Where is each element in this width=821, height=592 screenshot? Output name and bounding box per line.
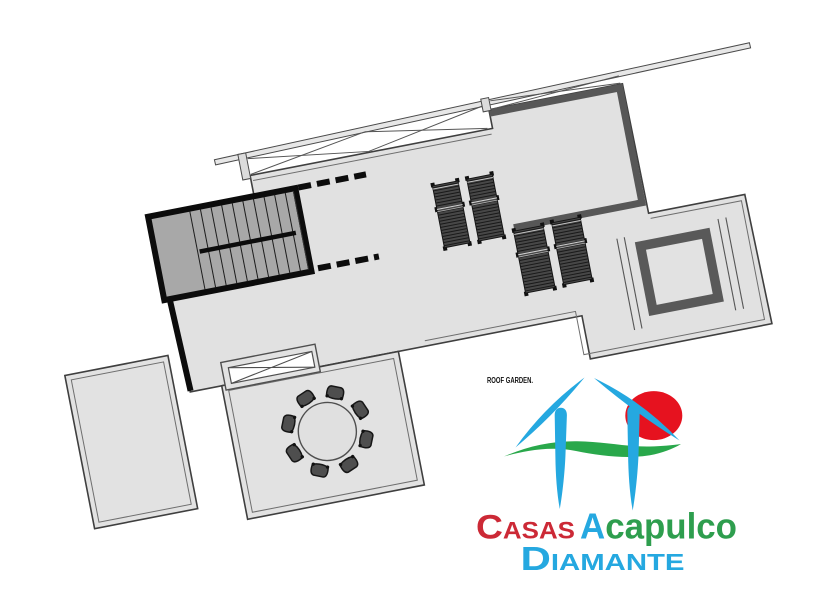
svg-text:Diamante: Diamante bbox=[521, 540, 685, 577]
svg-text:ROOF GARDEN.: ROOF GARDEN. bbox=[487, 376, 533, 385]
